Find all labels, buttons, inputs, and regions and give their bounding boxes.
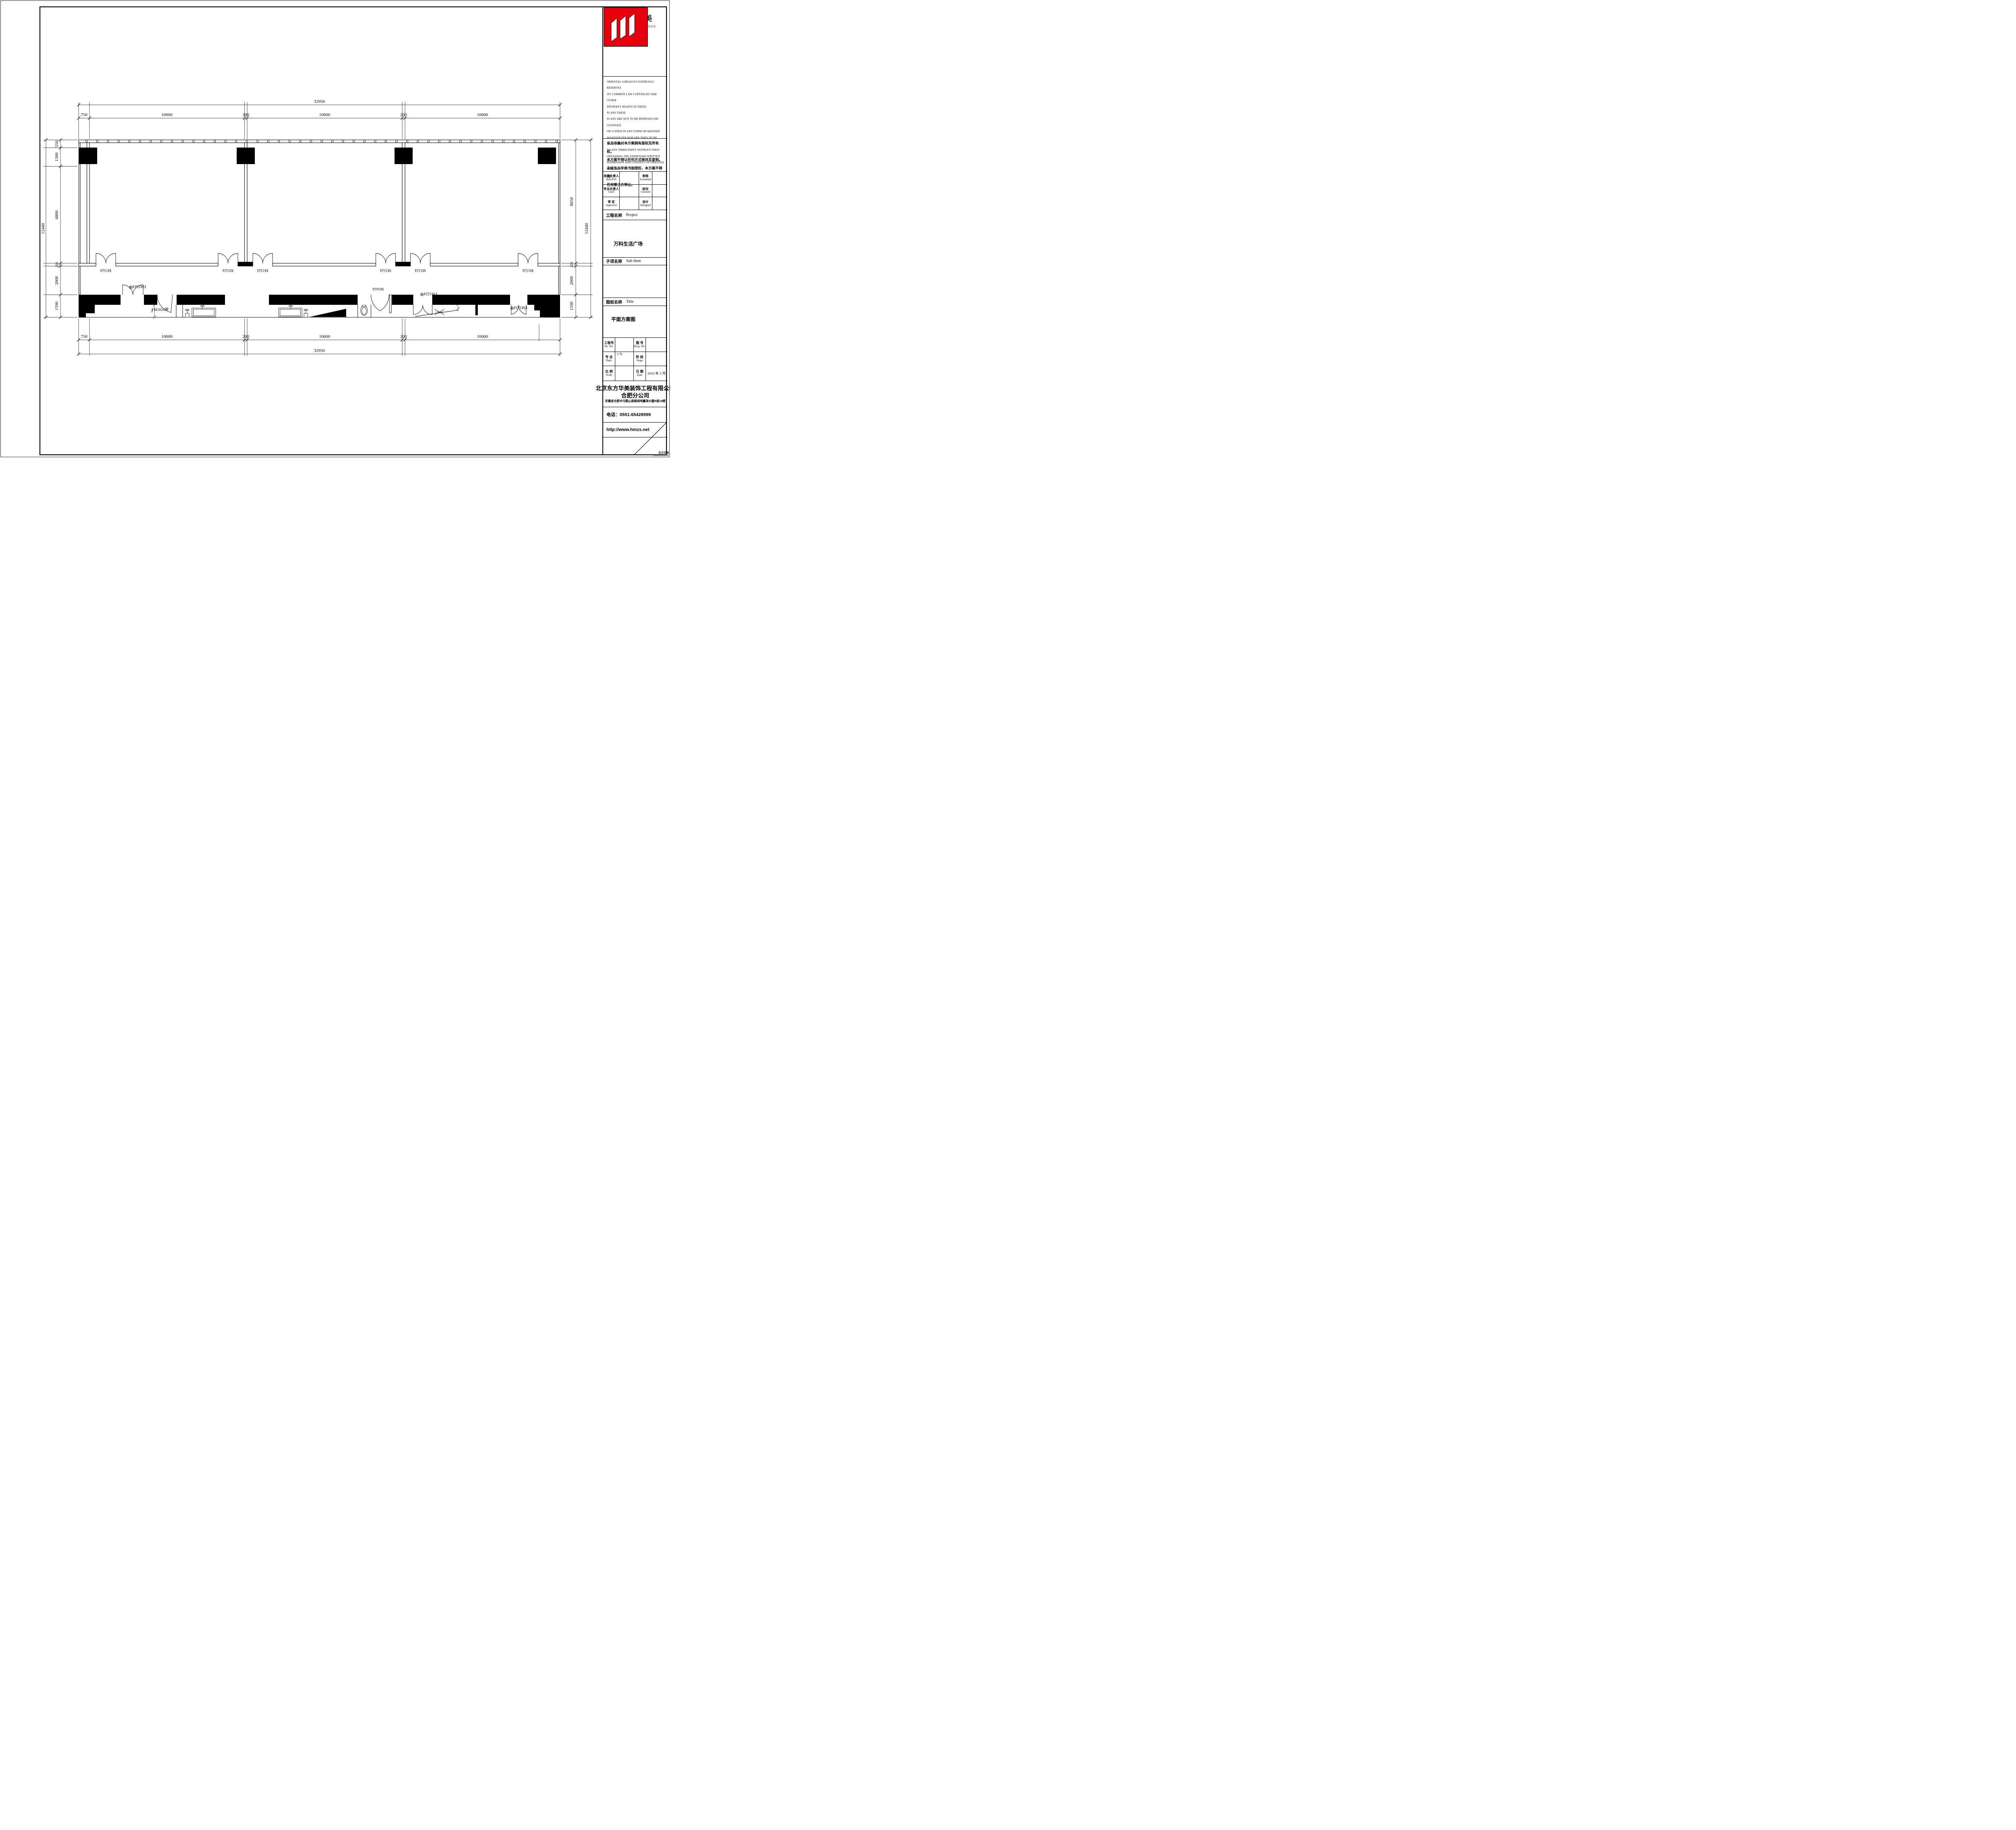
copyright-english: ORIENTAL GORGEOUS EXPRESSLY RESERVES ITS… [603,77,667,139]
svg-text:12440: 12440 [584,223,589,234]
dept-value: 1:70 [615,352,634,366]
svg-text:FM1024甲: FM1024甲 [152,308,169,312]
company-block: 北京东方华美装饰工程有限公司 合肥分公司 安徽省合肥市马鞍山南路绿地赢海大厦B座… [603,381,667,407]
designed-value [652,197,667,210]
project-name: 万科生活广场 [614,240,667,247]
floor-plan-canvas: 32950 750 10600 200 10600 200 10600 750 … [0,0,670,458]
door-labels: M1524 M1524 M1524 M1524 M1524 M1524 FM15… [100,268,534,312]
svg-text:M1524: M1524 [257,268,269,272]
date-value: 2016 年 3 月 [646,366,667,381]
svg-text:M1524: M1524 [223,268,234,272]
svg-text:FM1224甲: FM1224甲 [510,305,527,310]
walls [79,140,560,319]
checked-label: 校对 [642,187,648,191]
scale-value [615,366,634,381]
stair-diagonal [415,310,458,316]
pjt-dwg-row: 工程号Pjt .No. 图 号Dwg. No. [603,338,667,352]
svg-text:10600: 10600 [477,112,488,117]
examined-value [652,172,667,185]
column-3 [395,148,413,164]
company-name: 北京东方华美装饰工程有限公司 [596,385,671,392]
door-m1024 [371,295,389,311]
svg-text:750: 750 [81,112,87,117]
approved-label: 审 定 [608,200,614,204]
project-label-row: 工程名称 Project [603,210,667,220]
sub-item-label-row: 子项名称 Sub Item [603,258,667,265]
svg-text:10600: 10600 [319,112,330,117]
chief-label: 专业负责人 [604,187,619,191]
svg-text:200: 200 [55,262,59,267]
sheet-borders [1,1,670,457]
column-2 [237,148,255,164]
project-value-cell: 万科生活广场 [603,220,667,258]
scale-date-row: 比 例Scale 日 期Date 2016 年 3 月 [603,366,667,381]
logo-block: 东方华美 Oriental Gorgeous [603,7,667,77]
door-m1524-6 [518,254,538,264]
svg-text:200: 200 [400,334,407,339]
drawing-sheet: 32950 750 10600 200 10600 200 10600 750 … [0,0,670,458]
door-m1024-leaf [389,295,392,313]
dim-overall-top: 32950 [314,99,325,104]
svg-text:M1524: M1524 [100,268,112,272]
fixtures [185,305,445,317]
phone-number: 电话：0551-65428999 [606,411,651,418]
door-m1524-4 [376,254,396,264]
website-url: http://www.hmzs.net [606,427,650,432]
left-exterior-wall [79,143,80,295]
partition-2-base [396,262,410,266]
phone-row: 电话：0551-65428999 [603,407,667,423]
checked-value [652,185,667,198]
svg-text:M1524: M1524 [380,268,392,272]
svg-text:8650: 8650 [569,197,574,206]
door-m1524-1 [96,254,116,264]
band-room-lines [79,305,540,317]
svg-text:10600: 10600 [319,334,330,339]
svg-text:FM1524甲: FM1524甲 [129,284,146,289]
dim-overall-bottom: 32950 [314,348,325,353]
svg-text:1590: 1590 [54,302,59,311]
pedestal-1 [185,313,189,317]
svg-text:M1524: M1524 [415,268,426,272]
drawing-title-label-row: 图纸名称 Title [603,298,667,306]
service-band [79,295,560,318]
svg-text:M1524: M1524 [523,268,534,272]
right-exterior-wall [559,143,560,295]
svg-text:12440: 12440 [41,223,46,234]
designed-label: 设计 [642,200,648,204]
door-fm1224-1 [413,305,432,314]
dwg-value [646,338,667,352]
drawing-title-value-cell: 平面方案图 [603,306,667,338]
svg-text:750: 750 [81,334,87,339]
svg-text:1590: 1590 [569,302,574,311]
door-m1524-2 [218,254,238,264]
sheet-corner-watermark: 东方华美 www.hmzs.net [653,452,669,457]
company-address: 安徽省合肥市马鞍山南路绿地赢海大厦B座19楼 [605,399,666,403]
examined-label: 审核 [642,175,648,178]
company-logo-icon [603,7,648,47]
dept-stage-row: 专 业Dept. 1:70 阶 段Stage [603,352,667,366]
personnel-grid: 项目负责人Item.Prin 审核Examined 专业负责人Chief 校对C… [603,172,667,210]
door-m1524-5 [410,254,430,264]
svg-text:10600: 10600 [161,334,173,339]
drawing-title: 平面方案图 [611,316,667,323]
stage-value [646,352,667,366]
svg-text:200: 200 [400,112,407,117]
svg-text:200: 200 [570,262,574,267]
door-m1524-3 [253,254,273,264]
ramp-triangle [310,309,346,317]
company-branch: 合肥分公司 [621,392,650,400]
pjt-value [615,338,634,352]
doors [96,254,538,315]
svg-text:550: 550 [54,140,59,147]
svg-text:1300: 1300 [54,152,59,162]
pedestal-2 [304,313,308,317]
approved-value [620,197,639,210]
partition-1-base [238,262,253,266]
structural-columns [79,148,556,164]
svg-text:2000: 2000 [569,276,574,285]
column-4 [538,148,556,164]
dimension-texts: 32950 750 10600 200 10600 200 10600 750 … [41,99,589,353]
svg-text:2000: 2000 [54,276,59,285]
chief-value [620,185,639,198]
svg-text:FM1224甲: FM1224甲 [420,291,437,296]
sub-item-value-cell [603,265,667,298]
website-row: http://www.hmzs.net [603,423,667,438]
svg-text:200: 200 [242,334,249,339]
svg-text:6800: 6800 [54,210,59,220]
svg-text:200: 200 [242,112,249,117]
item-prin-value [620,172,639,185]
svg-text:M1024: M1024 [373,287,384,291]
svg-text:10600: 10600 [477,334,488,339]
svg-text:10600: 10600 [161,112,173,117]
title-block: 东方华美 Oriental Gorgeous ORIENTAL GORGEOUS… [602,7,666,455]
floor-drain-x [435,309,444,315]
item-prin-label: 项目负责人 [604,175,619,178]
curtain-wall [79,140,560,143]
copyright-chinese: 东方华美对本方案拥有版权及所有权。 本方案不得以任何方式修改及复制。 未经东方华… [603,139,667,172]
column-1 [79,148,97,164]
